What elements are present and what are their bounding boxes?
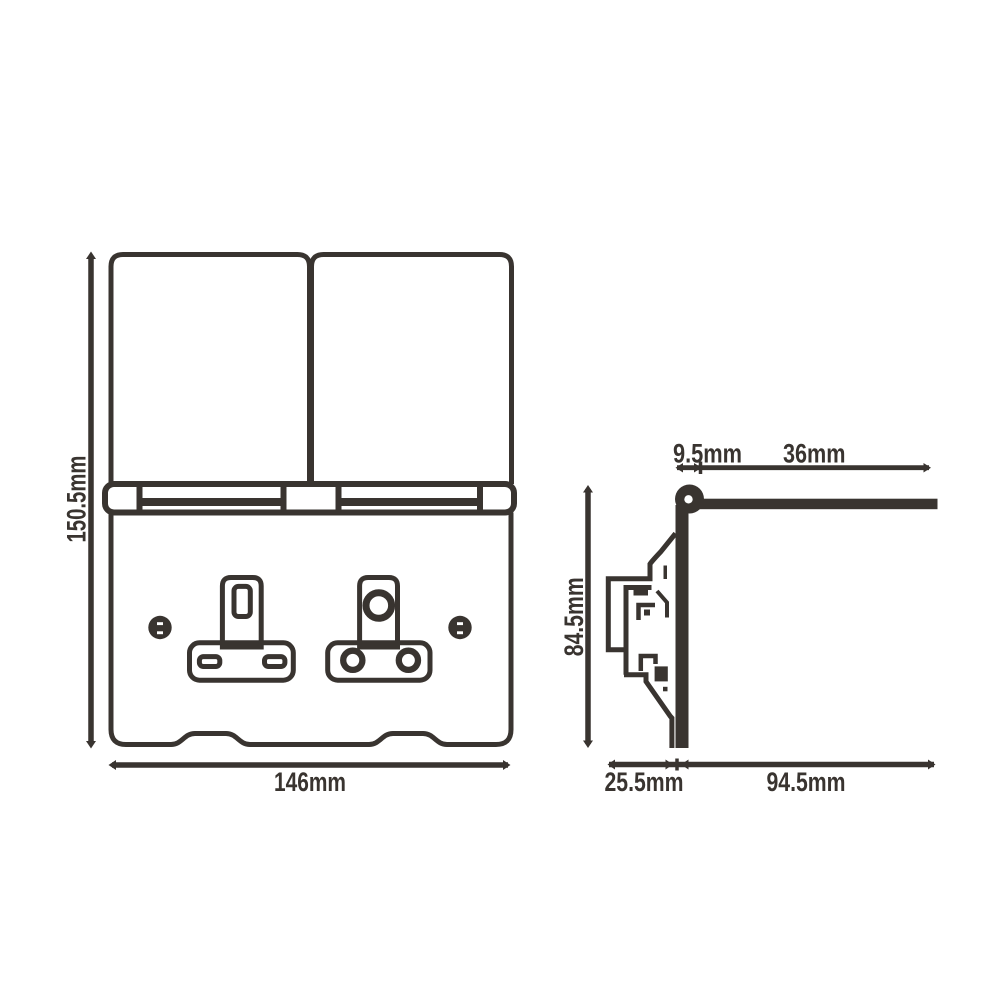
svg-text:36mm: 36mm — [783, 439, 846, 469]
svg-text:25.5mm: 25.5mm — [605, 767, 684, 797]
svg-text:84.5mm: 84.5mm — [559, 577, 589, 656]
svg-text:146mm: 146mm — [274, 767, 346, 797]
svg-text:150.5mm: 150.5mm — [62, 456, 92, 543]
svg-text:9.5mm: 9.5mm — [673, 439, 742, 469]
svg-text:94.5mm: 94.5mm — [767, 767, 846, 797]
